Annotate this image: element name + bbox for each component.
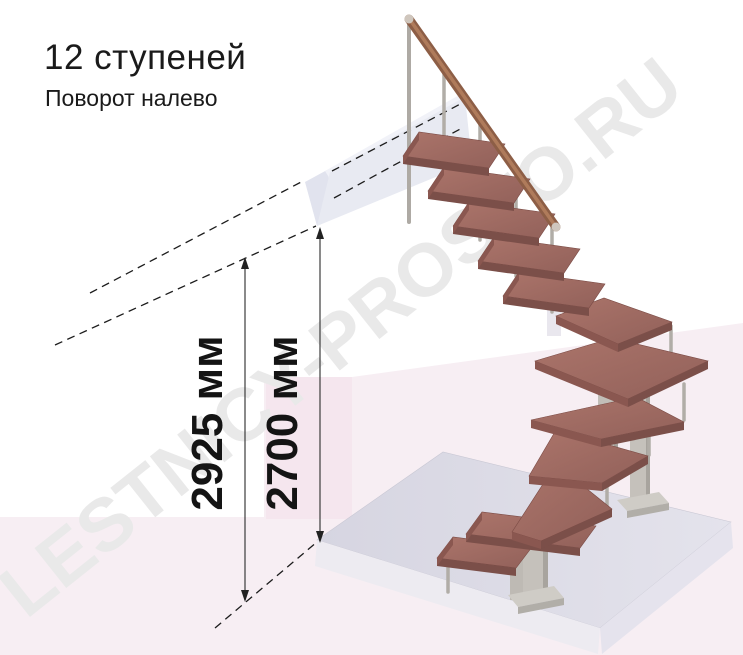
- dimension-2700-label: 2700 мм: [258, 335, 307, 510]
- page-subtitle: Поворот налево: [45, 85, 246, 112]
- page-title: 12 ступеней: [44, 38, 246, 78]
- handrail-top-cap: [405, 15, 414, 24]
- title-block: 12 ступеней Поворот налево: [44, 38, 246, 112]
- handrail-bottom-cap: [552, 223, 561, 232]
- dimension-2925-label: 2925 мм: [183, 335, 232, 510]
- staircase-diagram-page: LESTNICY-PROSTO.RU: [0, 0, 743, 655]
